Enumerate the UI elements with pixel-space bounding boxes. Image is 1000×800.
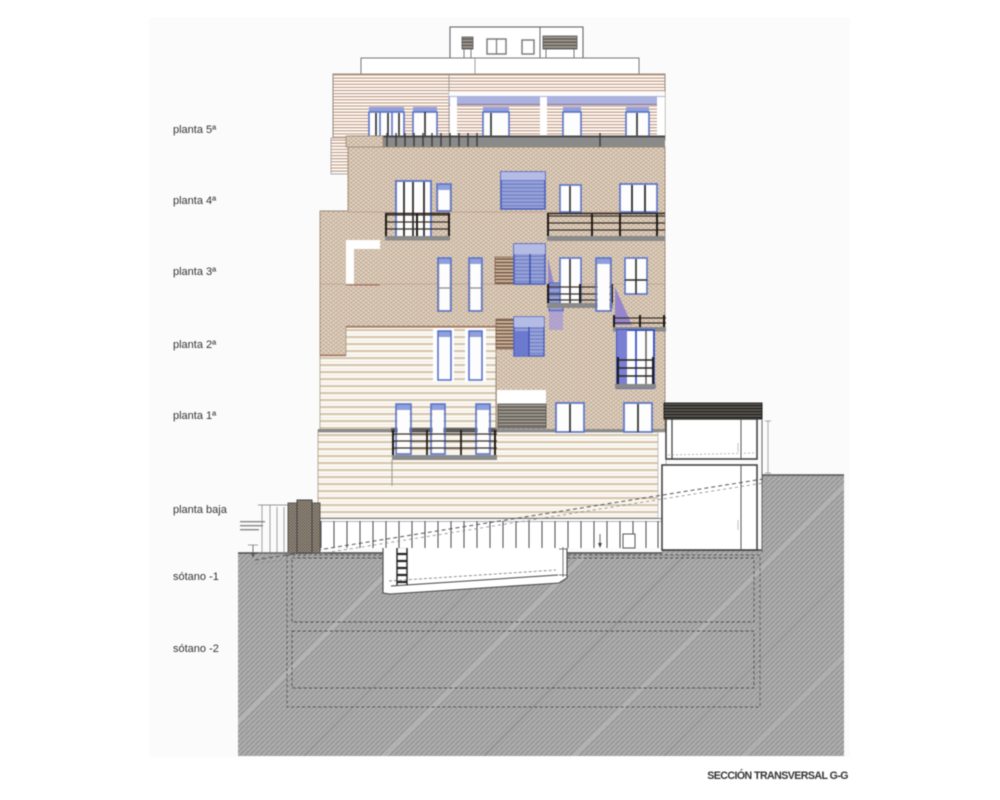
svg-text:planta 1ª: planta 1ª (173, 410, 217, 422)
svg-text:planta 2ª: planta 2ª (173, 339, 217, 351)
svg-text:planta baja: planta baja (173, 504, 228, 516)
svg-text:planta 5ª: planta 5ª (173, 124, 217, 136)
svg-text:sótano -2: sótano -2 (173, 643, 219, 655)
svg-text:SECCIÓN TRANSVERSAL G-G: SECCIÓN TRANSVERSAL G-G (707, 769, 848, 782)
svg-text:sótano -1: sótano -1 (173, 571, 219, 583)
svg-text:planta 4ª: planta 4ª (173, 195, 217, 207)
svg-text:planta 3ª: planta 3ª (173, 266, 217, 278)
